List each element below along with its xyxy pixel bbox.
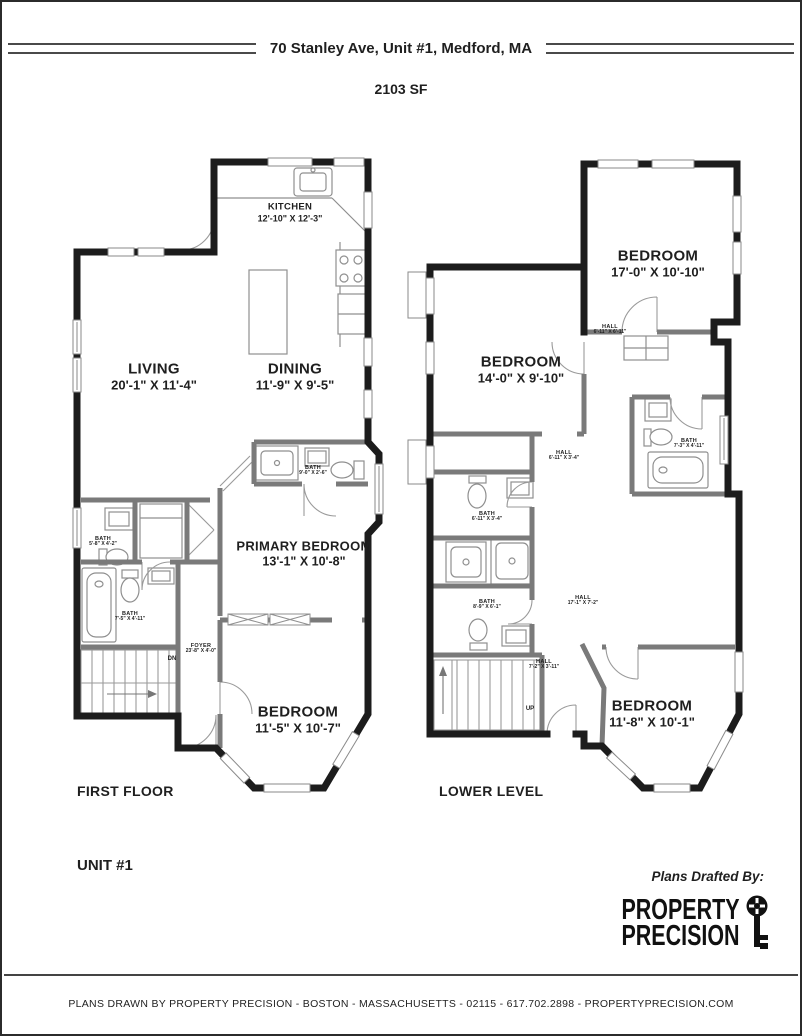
room-label-hall-front: HALL 7'-2" X 3'-11" xyxy=(529,659,559,671)
floor-plan-page: 70 Stanley Ave, Unit #1, Medford, MA 210… xyxy=(0,0,802,1036)
room-dims: 6'-11" X 6'-11" xyxy=(594,330,627,336)
room-name: KITCHEN xyxy=(258,203,323,214)
lower-level-interior-walls xyxy=(430,332,735,746)
key-icon xyxy=(744,895,770,953)
room-dims: 7'-5" X 4'-11" xyxy=(115,617,145,623)
room-dims: 11'-5" X 10'-7" xyxy=(255,721,341,736)
room-dims: 5'-8" X 4'-2" xyxy=(89,542,117,548)
room-label-bath-upper: BATH 5'-8" X 4'-2" xyxy=(89,536,117,548)
unit-label: UNIT #1 xyxy=(77,857,133,874)
room-label-bath-upper-lower-level: BATH 6'-11" X 3'-4" xyxy=(472,511,502,523)
lower-level-window-wells xyxy=(408,272,426,484)
stairs-down-label: DN xyxy=(168,656,177,662)
room-dims: 11'-9" X 9'-5" xyxy=(256,378,335,393)
room-name: BEDROOM xyxy=(478,354,564,371)
room-label-hall-middle: HALL 6'-11" X 3'-4" xyxy=(549,450,579,462)
room-dims: 14'-0" X 9'-10" xyxy=(478,371,564,386)
stairs-up-label: UP xyxy=(526,706,534,712)
room-dims: 20'-1" X 11'-4" xyxy=(111,378,197,393)
first-floor-doors xyxy=(142,218,336,748)
room-dims: 8'-9" X 6'-1" xyxy=(473,605,501,611)
drafted-by-label: Plans Drafted By: xyxy=(651,869,764,884)
room-label-foyer: FOYER 23'-8" X 4'-0" xyxy=(186,643,216,655)
first-floor-fixtures xyxy=(82,168,366,642)
property-precision-logo: PROPERTY PRECISION xyxy=(580,895,770,953)
room-label-hall-rear: HALL 6'-11" X 6'-11" xyxy=(594,324,627,336)
room-label-primary-bedroom: PRIMARY BEDROOM 13'-1" X 10'-8" xyxy=(236,540,371,569)
footer-divider xyxy=(4,974,798,976)
room-dims: 11'-8" X 10'-1" xyxy=(609,715,695,730)
room-dims: 12'-10" X 12'-3" xyxy=(258,213,323,223)
room-dims: 6'-11" X 3'-4" xyxy=(472,517,502,523)
room-label-bath-lower: BATH 7'-5" X 4'-11" xyxy=(115,611,145,623)
logo-line-2: PRECISION xyxy=(622,924,740,950)
room-label-dining: DINING 11'-9" X 9'-5" xyxy=(256,361,335,392)
room-label-hall-main: HALL 17'-1" X 7'-2" xyxy=(568,595,598,607)
lower-level-stairs xyxy=(434,660,542,730)
logo-wordmark: PROPERTY PRECISION xyxy=(622,898,740,949)
room-dims: 13'-1" X 10'-8" xyxy=(236,554,371,568)
room-dims: 7'-2" X 3'-11" xyxy=(529,665,559,671)
room-label-bath-hall: BATH 9'-0" X 2'-6" xyxy=(299,465,327,477)
room-name: BEDROOM xyxy=(255,704,341,721)
room-dims: 7'-3" X 4'-11" xyxy=(674,444,704,450)
room-name: DINING xyxy=(256,361,335,378)
room-label-bedroom-middle: BEDROOM 14'-0" X 9'-10" xyxy=(478,354,564,385)
room-dims: 6'-11" X 3'-4" xyxy=(549,456,579,462)
first-floor-caption: FIRST FLOOR xyxy=(77,783,174,799)
room-name: BEDROOM xyxy=(609,698,695,715)
room-dims: 17'-1" X 7'-2" xyxy=(568,601,598,607)
lower-level-caption: LOWER LEVEL xyxy=(439,783,543,799)
room-dims: 17'-0" X 10'-10" xyxy=(611,265,705,280)
room-label-bath-ensuite: BATH 7'-3" X 4'-11" xyxy=(674,438,704,450)
first-floor-stairs xyxy=(81,650,178,716)
room-label-bath-lower-lower-level: BATH 8'-9" X 6'-1" xyxy=(473,599,501,611)
room-dims: 23'-8" X 4'-0" xyxy=(186,649,216,655)
room-dims: 9'-0" X 2'-6" xyxy=(299,471,327,477)
room-label-bedroom-first-floor: BEDROOM 11'-5" X 10'-7" xyxy=(255,704,341,735)
room-name: PRIMARY BEDROOM xyxy=(236,540,371,555)
room-label-living: LIVING 20'-1" X 11'-4" xyxy=(111,361,197,392)
room-label-kitchen: KITCHEN 12'-10" X 12'-3" xyxy=(258,203,323,224)
room-name: LIVING xyxy=(111,361,197,378)
footer-text: PLANS DRAWN BY PROPERTY PRECISION - BOST… xyxy=(2,998,800,1010)
room-label-bedroom-front: BEDROOM 11'-8" X 10'-1" xyxy=(609,698,695,729)
room-name: BEDROOM xyxy=(611,248,705,265)
room-label-bedroom-rear: BEDROOM 17'-0" X 10'-10" xyxy=(611,248,705,279)
